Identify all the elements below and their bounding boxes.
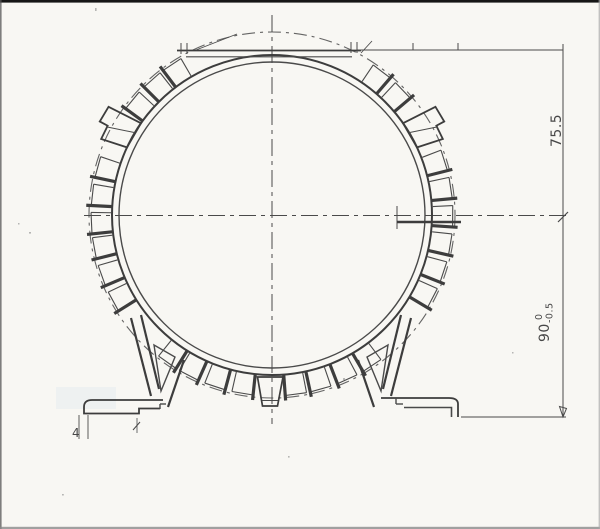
fin-bar	[160, 66, 176, 87]
fin-edge	[429, 177, 449, 181]
fin-edge	[369, 344, 381, 360]
fin-edge	[98, 260, 117, 266]
bottom-lug	[258, 377, 284, 406]
fin-edge	[181, 59, 191, 76]
fin-tip-chord	[427, 289, 437, 308]
fin-bar	[431, 198, 457, 200]
fin-edge	[324, 367, 331, 386]
dim-oblique-tick	[133, 422, 140, 430]
fin-bar	[330, 364, 340, 389]
bottom-lug-outline	[258, 377, 284, 406]
gusset-edge	[131, 318, 151, 396]
fin-tip-chord	[373, 65, 390, 78]
fin-bar	[140, 83, 159, 102]
fin-edge	[232, 372, 236, 392]
speck	[62, 494, 64, 496]
dim-text-90-group: 90 0 -0.5	[534, 302, 556, 342]
dim-text-4: 4	[72, 426, 80, 440]
dim-text-90: 90	[537, 323, 553, 342]
fin-edge	[433, 206, 453, 207]
left-gusset	[131, 315, 184, 407]
fin-bar	[90, 176, 116, 182]
speck	[288, 456, 290, 458]
gusset-edge	[383, 315, 401, 389]
speck	[343, 378, 345, 380]
dimension-75-5: 75.5	[357, 43, 568, 222]
fin-bar	[114, 300, 136, 314]
fin-tip-chord	[108, 292, 118, 311]
scan-border	[0, 0, 600, 529]
speck	[29, 232, 31, 234]
fin-bar	[87, 232, 113, 235]
dovetail-lug	[100, 107, 141, 148]
speck	[18, 223, 20, 225]
fin-tip-chord	[395, 83, 410, 99]
fin-tip-chord	[126, 92, 140, 109]
scanned-drawing-page: 75.5 90 0 -0.5 4	[0, 0, 600, 529]
fin-edge	[422, 150, 441, 157]
right-foot	[381, 398, 458, 417]
fin-tip-chord	[144, 73, 160, 87]
gusset-edge	[391, 318, 411, 396]
dovetail-lug	[403, 107, 444, 148]
fin-edge	[432, 232, 452, 234]
scan-tint	[56, 387, 116, 409]
fin-bar	[224, 369, 231, 395]
fin-edge	[92, 235, 112, 238]
fin-bar	[431, 226, 457, 228]
speck	[95, 8, 97, 11]
dimension-90: 90 0 -0.5	[461, 50, 567, 417]
fin-edge	[362, 65, 373, 82]
fin-bar	[86, 205, 112, 206]
scan-border-top	[0, 0, 600, 3]
fin-tip-chord	[179, 370, 198, 380]
fin-tip-chord	[92, 238, 96, 259]
fin-bar	[427, 169, 453, 176]
dim-tol-lower: -0.5	[545, 302, 556, 323]
fin-bar	[376, 74, 393, 94]
leader-line	[361, 41, 372, 53]
fin-bar	[253, 374, 256, 400]
leader-line	[196, 34, 237, 50]
lug-inner-line	[106, 127, 135, 133]
dim-tol-upper: 0	[534, 313, 545, 320]
fin-tip-chord	[163, 59, 181, 71]
speck	[512, 352, 514, 354]
fin-edge	[94, 184, 114, 187]
fin-bar	[284, 374, 286, 400]
dimension-4: 4	[72, 415, 140, 440]
technical-drawing: 75.5 90 0 -0.5 4	[0, 0, 600, 529]
fin-edge	[428, 257, 447, 262]
fin-tip-chord	[449, 177, 452, 198]
foot-underside	[404, 408, 452, 418]
fin-bar	[394, 95, 414, 112]
fin-bar	[409, 297, 432, 311]
fin-edge	[101, 157, 120, 163]
scan-border-left	[0, 0, 2, 529]
flat-top	[177, 34, 372, 57]
fin-tip-chord	[285, 393, 306, 396]
